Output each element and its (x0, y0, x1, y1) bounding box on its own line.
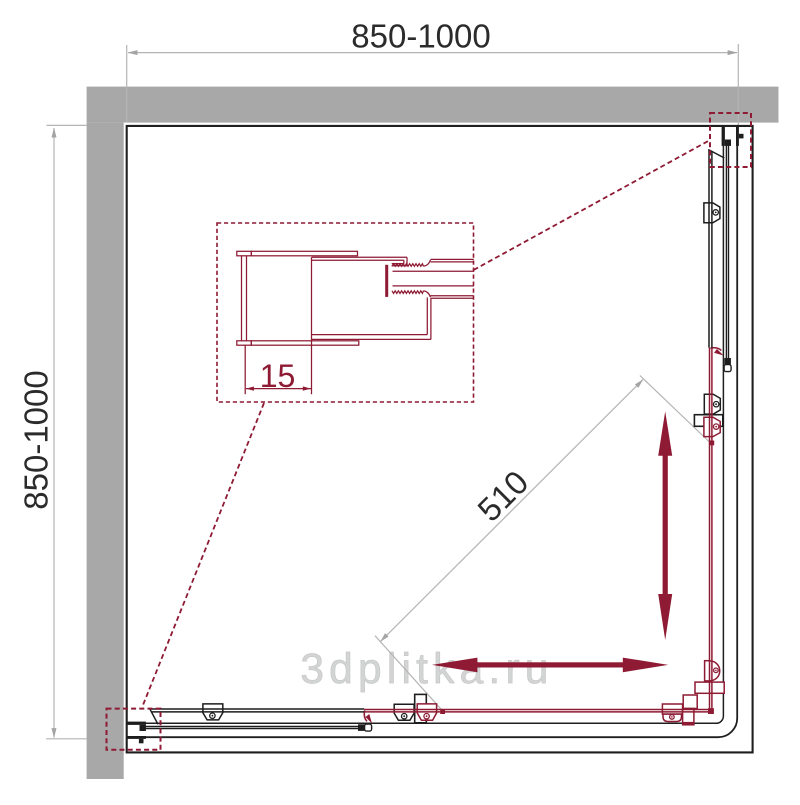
svg-text:3dplitka.ru: 3dplitka.ru (300, 646, 553, 693)
svg-text:850-1000: 850-1000 (351, 17, 490, 54)
svg-text:15: 15 (260, 358, 296, 394)
svg-text:850-1000: 850-1000 (18, 370, 55, 509)
